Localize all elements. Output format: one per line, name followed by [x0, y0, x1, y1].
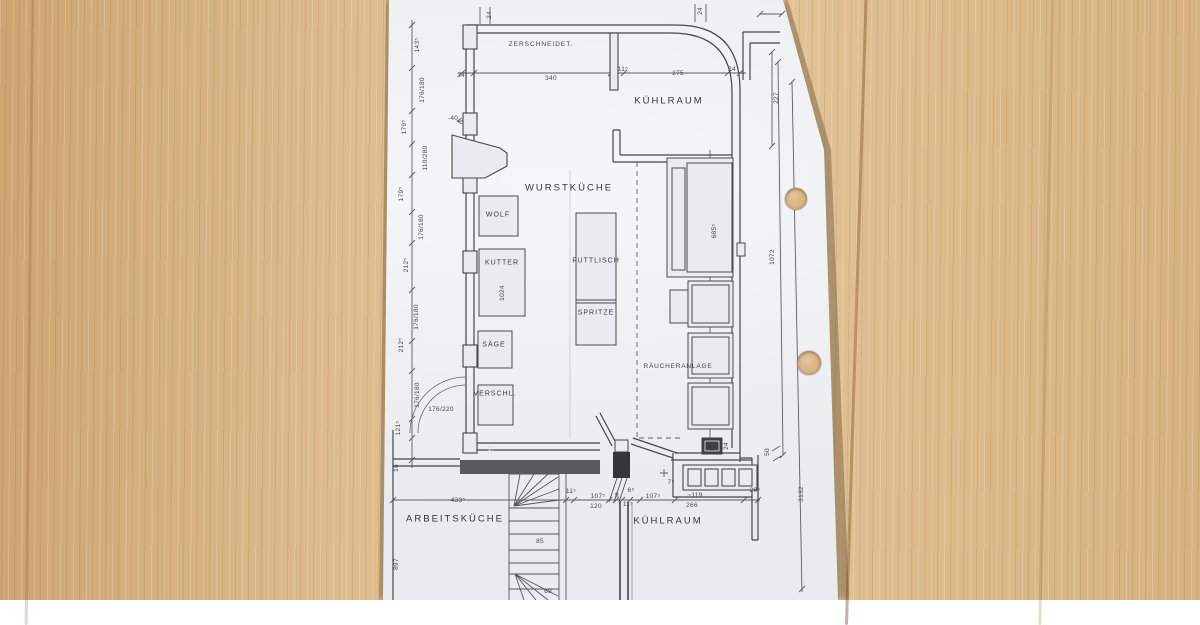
dim-label-143-5: 143⁵ [415, 38, 422, 53]
punch-hole-top [785, 188, 807, 210]
dim-label-kutter-capacity: 1024 [500, 285, 507, 301]
dim-label-176-180-c: 176/180 [414, 304, 421, 330]
dim-label-24-south-wall: 24 [489, 445, 496, 453]
equipment-label-saege: SÄGE [482, 342, 505, 349]
dim-label-266: 266 [686, 503, 698, 510]
partition-wall [610, 33, 618, 90]
room-label-zerschneidet: ZERSCHNEIDET. [509, 42, 574, 49]
dim-label-110-280: 110/280 [423, 145, 430, 170]
room-label-kuehlraum-top: KÜHLRAUM [634, 96, 703, 106]
dim-label-40: -40 [448, 116, 458, 123]
window-piers [463, 25, 477, 453]
dim-label-11-5-b: 11⁵ [623, 502, 633, 509]
staircase [509, 471, 566, 600]
dim-label-340: 340 [545, 76, 557, 83]
dim-label-69: 69 [544, 589, 552, 596]
bay-chute [452, 135, 507, 178]
dim-label-26-5: 26⁵ [750, 488, 761, 495]
dim-label-107-5-b: 107⁵ [646, 494, 661, 501]
dim-label-11-5-a: 11⁵ [566, 489, 576, 496]
dim-label-3132: 3132 [799, 486, 806, 502]
dim-label-212-5-b: 212⁵ [399, 338, 406, 353]
floorplan-drawing [378, 0, 840, 600]
dim-label-121-5: 121⁵ [396, 421, 403, 436]
room-label-kuehlraum-bottom: KÜHLRAUM [633, 516, 702, 526]
fuelltisch-table [576, 213, 616, 345]
dim-label-119: ~119 [687, 493, 702, 500]
dim-label-24-corner-left: 24 [487, 11, 494, 19]
room-label-raeucheranlage: RÄUCHERANLAGE [644, 364, 713, 371]
punch-hole-bottom [797, 351, 821, 375]
dim-label-179-5-b: 179⁵ [399, 187, 406, 202]
dim-label-24-corner-right: 24 [698, 7, 705, 15]
equipment-label-wolf: WOLF [486, 212, 510, 219]
dim-label-685-5: 685⁵ [712, 224, 719, 239]
dim-label-24-box: 24 [724, 442, 731, 450]
saege-box [478, 331, 512, 368]
equipment-label-kutter: KUTTER [485, 260, 519, 267]
dim-label-9: 9 [615, 493, 619, 500]
dim-label-212-5-a: 212⁵ [404, 258, 411, 273]
dim-label-107-5-a: 107⁵ [591, 494, 606, 501]
room-label-arbeitskueche: ARBEITSKÜCHE [406, 514, 504, 524]
dim-label-176-220-door: 176/220 [428, 407, 454, 414]
wall-solid-section [460, 460, 600, 474]
dim-label-897: 897 [394, 558, 401, 570]
dim-label-24-wall-left: 24 [457, 73, 465, 80]
dim-label-85: 85 [536, 539, 544, 546]
raeucheranlage-units [667, 158, 745, 429]
dim-label-433-5: 433⁵ [451, 498, 466, 505]
dim-label-227: 227 [774, 92, 781, 104]
dim-label-50: 50 [765, 448, 772, 456]
floorplan: ZERSCHNEIDET. KÜHLRAUM WURSTKÜCHE RÄUCHE… [378, 0, 840, 600]
photo-of-floorplan: { "colors": { "paper": "#e9ebee", "wood"… [0, 0, 1200, 600]
dim-label-176-180-a: 176/180 [420, 77, 427, 103]
dim-label-115: 11⁵ [618, 67, 628, 74]
dim-label-24-wall-right: 24 [728, 67, 736, 74]
dim-label-275: 275 [672, 71, 684, 78]
dim-label-176-180-d: 176/180 [415, 382, 422, 408]
dim-label-179-5-a: 179⁵ [402, 120, 409, 135]
equipment-label-fuelltisch: FUTTLISCH [572, 258, 620, 265]
room-label-wurstkueche: WURSTKÜCHE [525, 183, 613, 193]
equipment-label-verschluss: VERSCHL. [473, 391, 516, 398]
dim-label-16: 16 [394, 464, 401, 472]
dim-label-7-5: 7⁵ [668, 480, 675, 487]
bottom-wall [620, 502, 628, 600]
dim-label-1072: 1072 [770, 249, 777, 265]
dim-label-176-180-b: 176/180 [419, 214, 426, 240]
dim-label-120: 120 [590, 504, 602, 511]
cooling-units-row [683, 465, 757, 490]
equipment-label-spritze: SPRITZE [578, 310, 615, 317]
dim-label-6-5: 6⁵ [628, 488, 635, 495]
